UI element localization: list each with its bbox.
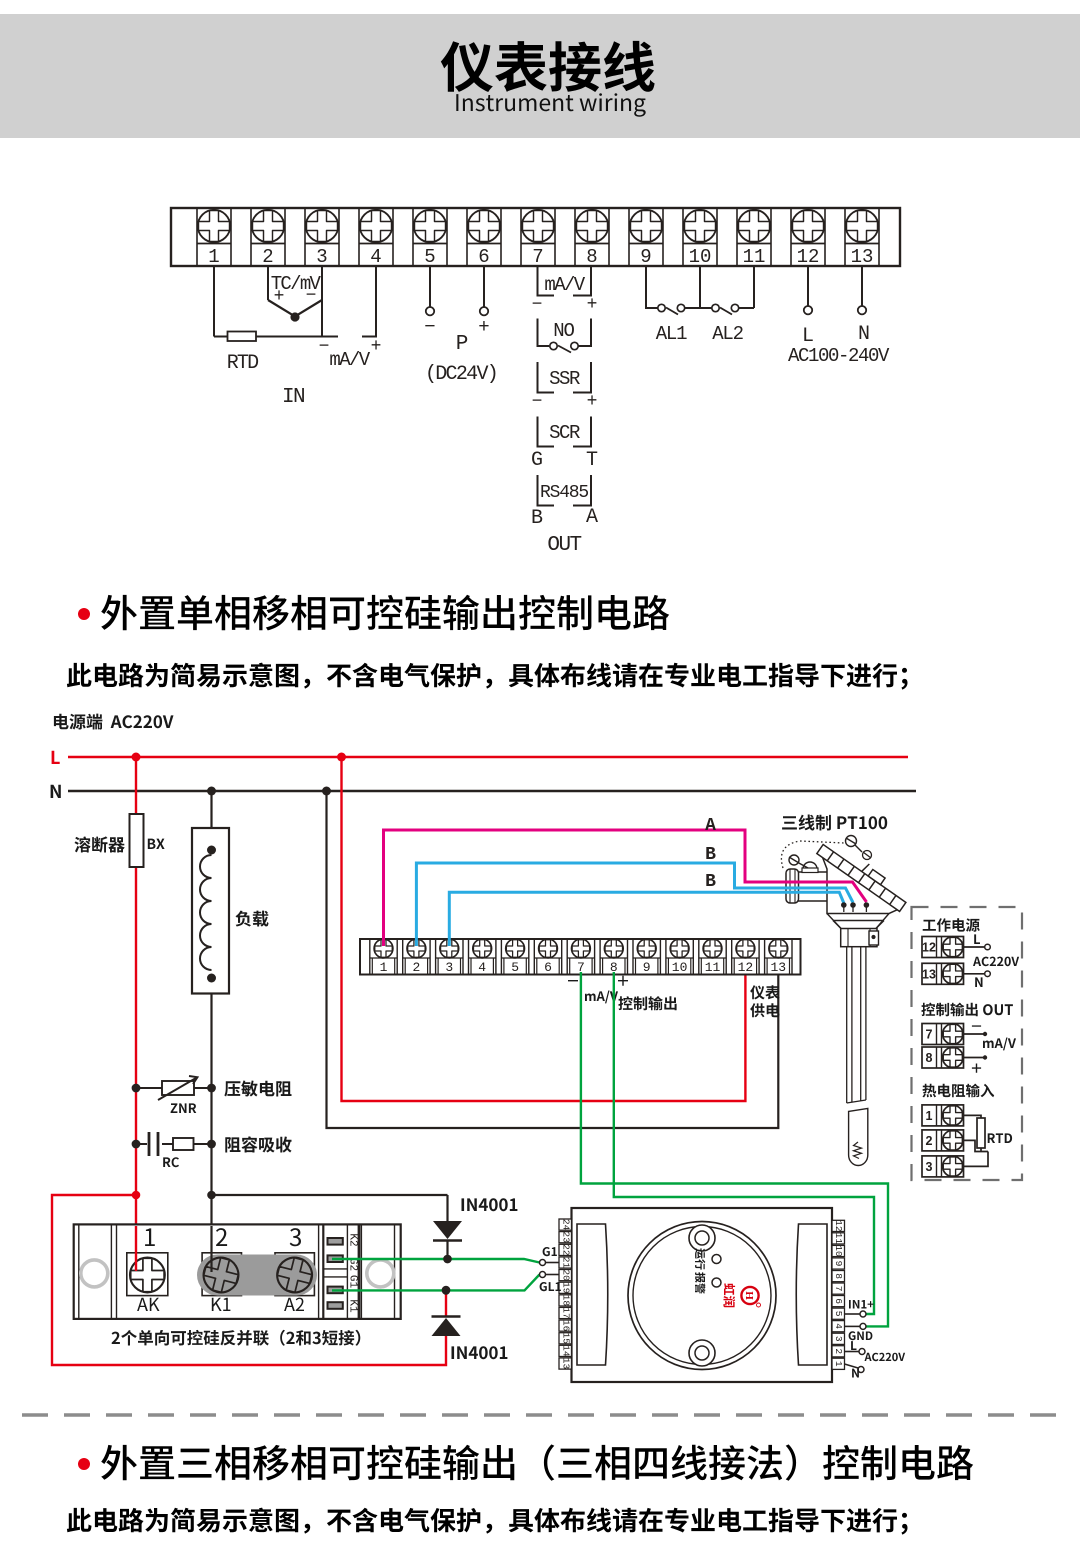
svg-text:G1: G1 — [347, 1275, 359, 1289]
svg-text:10: 10 — [689, 246, 712, 268]
svg-text:5: 5 — [424, 246, 435, 268]
svg-text:3: 3 — [833, 1336, 844, 1342]
svg-text:1: 1 — [926, 1109, 933, 1123]
svg-text:+: + — [274, 287, 285, 307]
svg-text:20: 20 — [560, 1269, 571, 1281]
svg-text:19: 19 — [560, 1282, 571, 1294]
svg-text:+: + — [371, 337, 382, 357]
svg-text:AC100-240V: AC100-240V — [788, 345, 890, 367]
svg-text:+: + — [587, 295, 598, 315]
svg-text:5: 5 — [833, 1311, 844, 1317]
svg-text:13: 13 — [560, 1358, 571, 1370]
svg-text:3: 3 — [445, 960, 453, 975]
svg-text:IN: IN — [282, 386, 304, 409]
svg-text:16: 16 — [560, 1320, 571, 1332]
svg-text:2: 2 — [262, 246, 273, 268]
svg-text:SCR: SCR — [549, 422, 580, 444]
svg-text:13: 13 — [922, 967, 936, 981]
svg-text:21: 21 — [560, 1257, 571, 1269]
svg-text:3: 3 — [926, 1160, 933, 1174]
svg-text:23: 23 — [560, 1231, 571, 1243]
svg-text:AL1: AL1 — [656, 323, 687, 345]
svg-text:+: + — [478, 316, 489, 338]
svg-text:13: 13 — [770, 960, 786, 975]
svg-text:T: T — [586, 449, 598, 472]
svg-text:17: 17 — [560, 1307, 571, 1319]
svg-text:−: − — [532, 295, 543, 315]
svg-text:12: 12 — [797, 246, 820, 268]
svg-text:7: 7 — [833, 1286, 844, 1292]
svg-text:8: 8 — [833, 1273, 844, 1279]
svg-text:B: B — [531, 507, 543, 530]
svg-text:RS485: RS485 — [540, 483, 588, 503]
svg-text:NO: NO — [553, 320, 574, 342]
svg-text:12: 12 — [738, 960, 754, 975]
svg-text:15: 15 — [560, 1333, 571, 1345]
svg-text:2: 2 — [926, 1134, 933, 1148]
svg-text:6: 6 — [478, 246, 489, 268]
svg-text:−: − — [532, 392, 543, 412]
svg-text:K2: K2 — [347, 1233, 359, 1246]
svg-text:mA/V: mA/V — [544, 274, 585, 296]
svg-text:22: 22 — [560, 1244, 571, 1256]
svg-text:+: + — [587, 392, 598, 412]
svg-text:5: 5 — [511, 960, 519, 975]
svg-text:A: A — [586, 506, 598, 529]
svg-text:14: 14 — [560, 1345, 571, 1357]
svg-text:K1: K1 — [347, 1299, 359, 1313]
svg-text:7: 7 — [532, 246, 543, 268]
svg-text:P: P — [456, 333, 469, 356]
svg-text:RTD: RTD — [227, 352, 258, 375]
svg-text:4: 4 — [833, 1323, 844, 1329]
svg-text:A: A — [705, 816, 716, 836]
svg-text:10: 10 — [833, 1245, 844, 1257]
svg-text:(DC24V): (DC24V) — [425, 363, 497, 386]
svg-text:N: N — [858, 323, 870, 346]
svg-text:mA/V: mA/V — [329, 349, 370, 371]
svg-text:1: 1 — [208, 246, 219, 268]
svg-text:13: 13 — [851, 246, 874, 268]
svg-text:6: 6 — [833, 1298, 844, 1304]
svg-text:B: B — [705, 872, 716, 892]
svg-text:4: 4 — [370, 246, 381, 268]
svg-text:4: 4 — [478, 960, 486, 975]
svg-text:12: 12 — [833, 1220, 844, 1232]
svg-text:7: 7 — [926, 1028, 933, 1042]
svg-text:H: H — [743, 1291, 755, 1300]
svg-text:1: 1 — [380, 960, 388, 975]
svg-text:−: − — [306, 286, 317, 306]
svg-text:6: 6 — [544, 960, 552, 975]
svg-text:9: 9 — [640, 246, 651, 268]
svg-text:8: 8 — [586, 246, 597, 268]
svg-text:11: 11 — [833, 1233, 844, 1245]
svg-text:11: 11 — [743, 246, 766, 268]
svg-text:−: − — [424, 316, 435, 338]
svg-text:−: − — [319, 337, 330, 357]
svg-text:1: 1 — [833, 1361, 844, 1367]
svg-text:2: 2 — [833, 1348, 844, 1354]
svg-text:24: 24 — [560, 1219, 571, 1231]
svg-text:11: 11 — [705, 960, 721, 975]
svg-text:SSR: SSR — [549, 368, 580, 390]
svg-text:2: 2 — [412, 960, 420, 975]
svg-text:8: 8 — [926, 1051, 933, 1065]
svg-text:3: 3 — [316, 246, 327, 268]
svg-text:10: 10 — [672, 960, 688, 975]
svg-text:B: B — [705, 845, 716, 865]
svg-text:12: 12 — [922, 941, 936, 955]
svg-text:G: G — [531, 449, 543, 472]
svg-text:AL2: AL2 — [712, 323, 743, 345]
svg-text:OUT: OUT — [547, 534, 581, 557]
svg-text:18: 18 — [560, 1295, 571, 1307]
svg-text:9: 9 — [833, 1261, 844, 1267]
svg-text:9: 9 — [643, 960, 651, 975]
